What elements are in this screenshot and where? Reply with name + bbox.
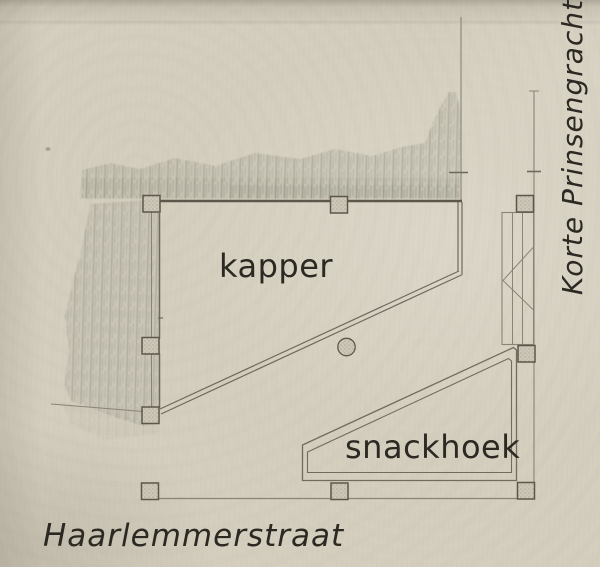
hatch-top-band: [80, 92, 460, 199]
ink-speck: [46, 147, 51, 150]
round-column: [338, 338, 355, 355]
column: [142, 483, 159, 500]
stair-direction-chevron: [503, 247, 534, 310]
kapper-walls: [152, 201, 463, 414]
street-label-korte-prinsengracht: Korte Prinsengracht: [559, 0, 587, 295]
facade-reference-lines: [461, 17, 539, 484]
column: [517, 196, 534, 213]
column: [518, 346, 535, 363]
street-label-haarlemmerstraat: Haarlemmerstraat: [43, 521, 344, 552]
stair-run: [502, 213, 534, 345]
floor-plan-page: kapper snackhoek Haarlemmerstraat Korte …: [0, 0, 600, 567]
column: [331, 483, 348, 500]
room-label-kapper: kapper: [219, 250, 333, 282]
column: [143, 196, 160, 213]
column: [518, 483, 535, 500]
column: [142, 338, 159, 355]
room-label-snackhoek: snackhoek: [345, 431, 520, 463]
column: [331, 197, 348, 214]
column: [142, 407, 159, 424]
